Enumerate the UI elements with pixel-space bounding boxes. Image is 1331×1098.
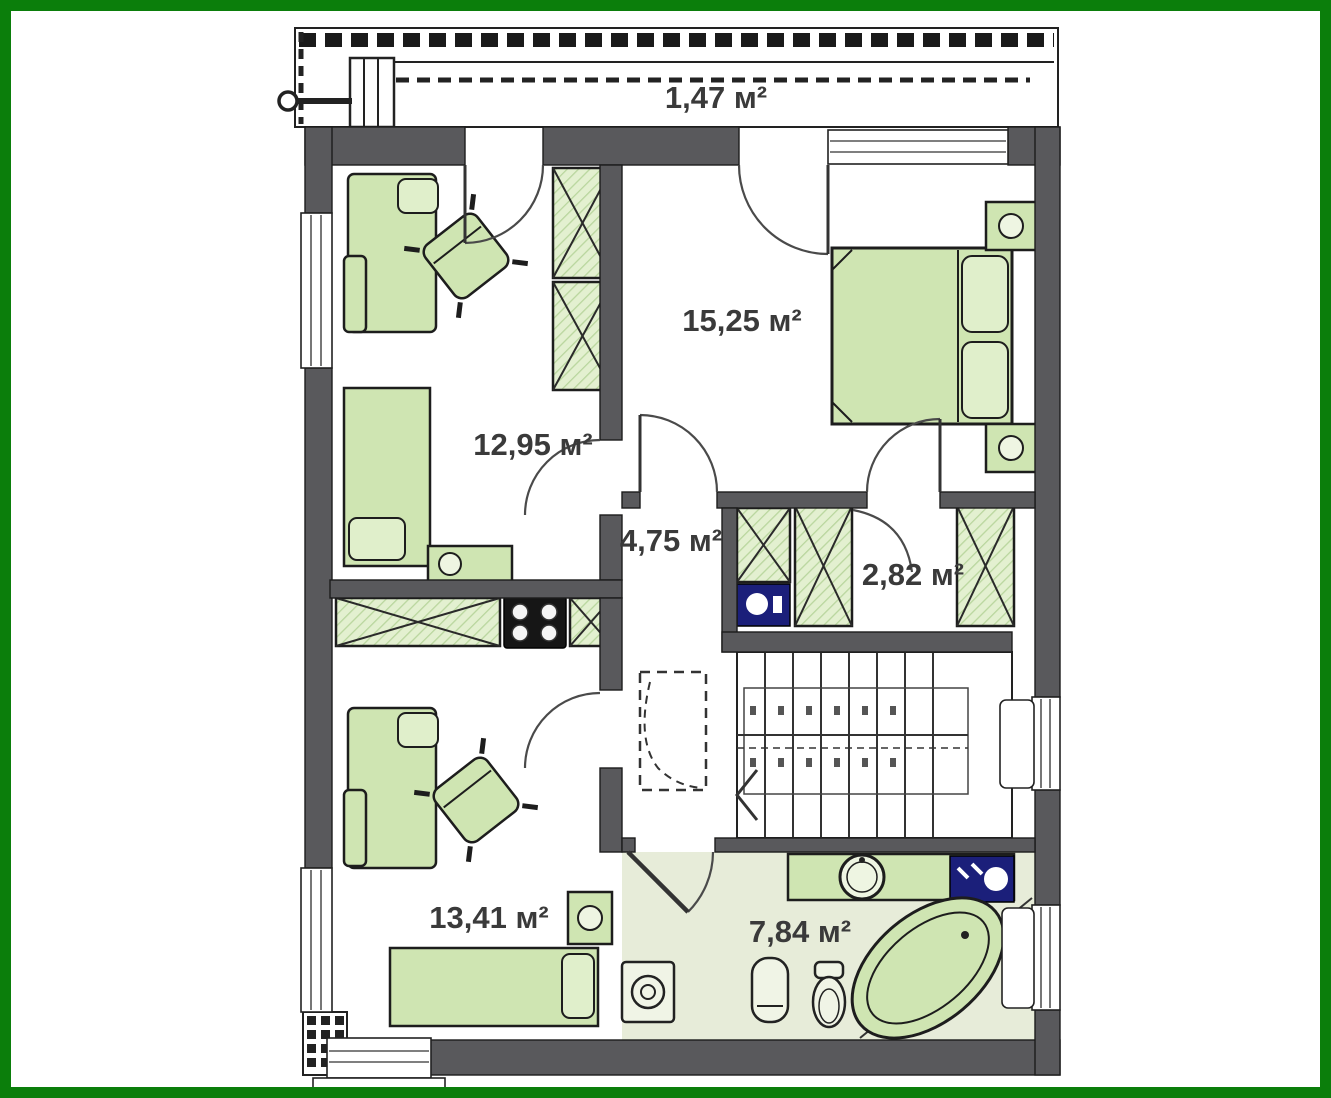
- interior-wall: [600, 768, 622, 852]
- washing-machine: [622, 962, 674, 1022]
- washing-machine: [737, 584, 790, 626]
- window-right-stairs: [1000, 697, 1060, 790]
- label-room-bottom-left: 13,41 м²: [429, 900, 548, 935]
- lamp-icon: [999, 214, 1023, 238]
- interior-wall: [600, 515, 622, 580]
- sofa-pillow: [398, 179, 438, 213]
- lamp-icon: [439, 553, 461, 575]
- attic-hatch-dashed-box: [640, 672, 706, 790]
- stove: [504, 596, 566, 648]
- interior-wall: [717, 492, 867, 508]
- room-top-left-furniture: [344, 168, 612, 582]
- exterior-wall-right: [1035, 790, 1060, 905]
- kitchenette-row: [336, 596, 612, 648]
- door-bedroom-to-closet: [867, 419, 940, 492]
- label-hall: 4,75 м²: [620, 523, 722, 558]
- interior-wall: [940, 492, 1035, 508]
- label-bathroom: 7,84 м²: [749, 914, 851, 949]
- toilet: [813, 962, 845, 1027]
- burner-icon: [512, 625, 528, 641]
- window-sill: [1000, 700, 1034, 788]
- bed-pillow: [962, 256, 1008, 332]
- window-sill: [1002, 908, 1034, 1008]
- interior-wall: [715, 838, 1035, 852]
- window-top-bedroom: [828, 130, 1008, 164]
- lamp-icon: [578, 906, 602, 930]
- balcony-column: [350, 58, 394, 127]
- exterior-wall-bottom: [430, 1040, 1060, 1075]
- interior-wall: [722, 508, 737, 652]
- bed-pillow: [349, 518, 405, 560]
- label-room-top-left: 12,95 м²: [473, 427, 592, 462]
- floor-plan-canvas: 1,47 м² 15,25 м² 12,95 м² 4,75 м² 2,82 м…: [0, 0, 1331, 1098]
- interior-wall: [330, 580, 622, 598]
- door-balcony-bedroom: [739, 165, 828, 254]
- interior-wall: [600, 598, 622, 690]
- exterior-wall-right: [1035, 127, 1060, 697]
- lamp-icon: [999, 436, 1023, 460]
- sofa-armrest: [344, 256, 366, 332]
- door-bedroom-to-hall: [640, 415, 717, 492]
- tub-drain-icon: [961, 931, 969, 939]
- window-right-bathroom: [1002, 905, 1060, 1010]
- burner-icon: [541, 625, 557, 641]
- window-left-upper: [301, 213, 332, 368]
- label-bedroom: 15,25 м²: [682, 303, 801, 338]
- sofa-armrest: [344, 790, 366, 866]
- interior-wall: [722, 632, 1012, 652]
- window-bottom: [313, 1038, 445, 1090]
- faucet-icon: [859, 857, 865, 863]
- drainpipe-icon: [279, 92, 297, 110]
- window-left-lower: [301, 868, 332, 1012]
- exterior-wall-left: [305, 368, 332, 868]
- exterior-wall-right: [1035, 1010, 1060, 1075]
- door-hall-to-room-bottom-left: [525, 693, 600, 768]
- interior-wall: [622, 492, 640, 508]
- exterior-wall-left: [305, 127, 332, 213]
- exterior-wall-top: [543, 127, 739, 165]
- bedroom-furniture: [832, 202, 1036, 472]
- bidet: [752, 958, 788, 1022]
- bed-pillow: [562, 954, 594, 1018]
- dryer-appliance: [950, 856, 1014, 902]
- stairs-outline: [737, 652, 1012, 838]
- sofa-pillow: [398, 713, 438, 747]
- interior-wall: [622, 838, 635, 852]
- stairs: [737, 652, 1012, 838]
- floor-plan-page: 1,47 м² 15,25 м² 12,95 м² 4,75 м² 2,82 м…: [0, 0, 1331, 1098]
- label-closet: 2,82 м²: [862, 557, 964, 592]
- label-balcony: 1,47 м²: [665, 80, 767, 115]
- burner-icon: [541, 604, 557, 620]
- interior-wall: [600, 165, 622, 440]
- burner-icon: [512, 604, 528, 620]
- room-bottom-left-furniture: [344, 708, 612, 1026]
- bed-pillow: [962, 342, 1008, 418]
